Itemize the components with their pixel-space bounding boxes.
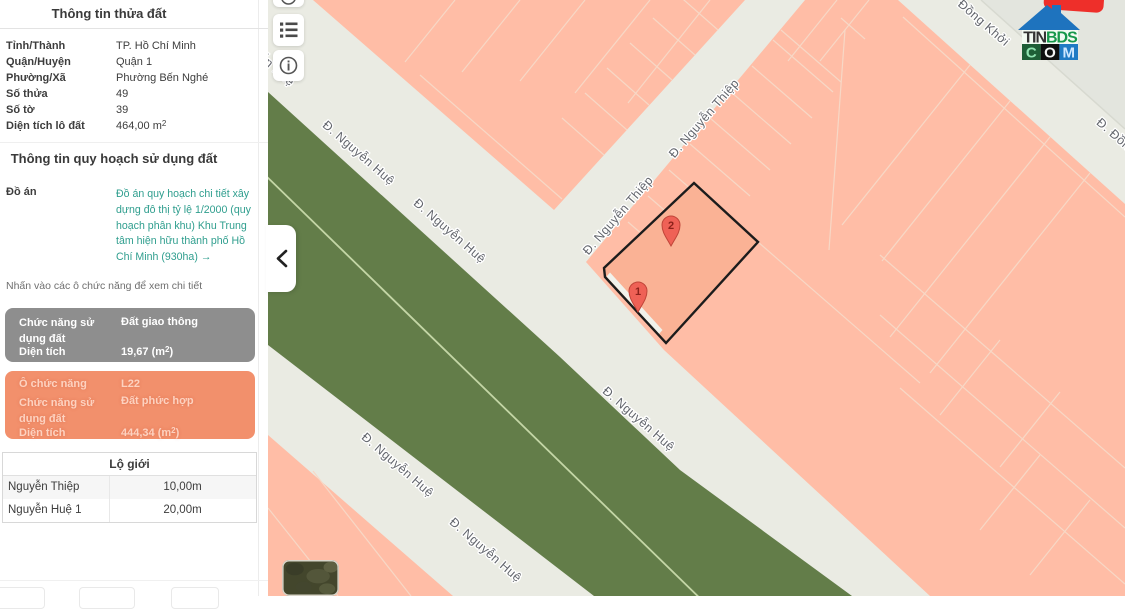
svg-text:O: O bbox=[1044, 45, 1056, 62]
svg-text:2: 2 bbox=[668, 220, 674, 232]
svg-text:C: C bbox=[1026, 45, 1037, 62]
svg-text:M: M bbox=[1062, 45, 1075, 62]
svg-text:1: 1 bbox=[635, 286, 641, 298]
